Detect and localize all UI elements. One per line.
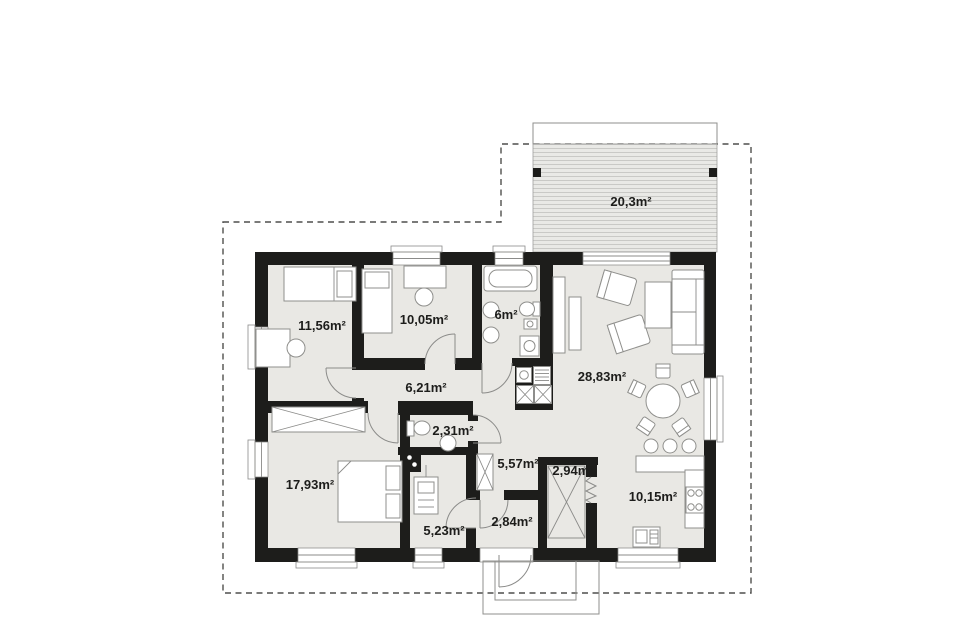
room-label-bedroom-3: 17,93m² [286,477,335,492]
bar-stool [663,439,677,453]
sofa [672,270,704,354]
room-terrace: 20,3m² [533,123,717,252]
washing-machine [517,368,532,383]
bar-stool [682,439,696,453]
room-label-living: 28,83m² [578,369,627,384]
room-vestibule: 2,84m² [491,514,533,529]
furnace [405,451,421,472]
toilet [520,302,535,316]
room-label-hall-2: 5,57m² [497,456,539,471]
window [296,548,357,568]
toilet [414,421,430,435]
window [493,246,525,265]
coffee-table [645,282,671,328]
tv-cabinet [553,277,565,353]
washbasin [483,327,499,343]
room-label-bedroom-1: 11,56m² [298,318,346,333]
shelf-unit [534,367,551,385]
sideboard [569,297,581,350]
pillow [386,494,400,518]
desk [256,329,290,367]
terrace-post [533,168,541,177]
toilet-tank [407,421,414,436]
room-label-bedroom-2: 10,05m² [400,312,449,327]
window [704,376,723,442]
desk-chair [415,288,433,306]
cooktop [686,487,704,513]
terrace-edge-band [533,123,717,144]
entrance-opening [480,548,533,562]
room-label-pantry: 2,94m² [552,463,594,478]
window [391,246,442,265]
terrace-post [709,168,717,177]
utility-closet [515,366,553,410]
entrance-porch [483,561,599,614]
room-label-terrace: 20,3m² [610,194,652,209]
window [616,548,680,568]
dining-chair [656,364,670,378]
room-label-bathroom: 6m² [494,307,518,322]
bar-stool [644,439,658,453]
room-label-boiler: 5,23m² [423,523,465,538]
room-label-hall: 6,21m² [405,380,447,395]
terrace-door [583,252,670,265]
pillow [337,271,352,297]
desk-chair [287,339,305,357]
desk [404,266,446,288]
floor-plan: 20,3m² [0,0,960,630]
floor-plan-page: 20,3m² [0,0,960,630]
kitchen-sink [633,527,660,547]
pillow [386,466,400,490]
room-hall: 6,21m² [405,380,447,395]
washing-machine [520,336,539,356]
dining-table [646,384,680,418]
room-label-kitchen: 10,15m² [629,489,678,504]
room-label-wc: 2,31m² [432,423,474,438]
window [248,440,268,479]
bidet [524,319,537,329]
window [413,548,444,568]
room-label-vestibule: 2,84m² [491,514,533,529]
pillow [365,272,389,288]
